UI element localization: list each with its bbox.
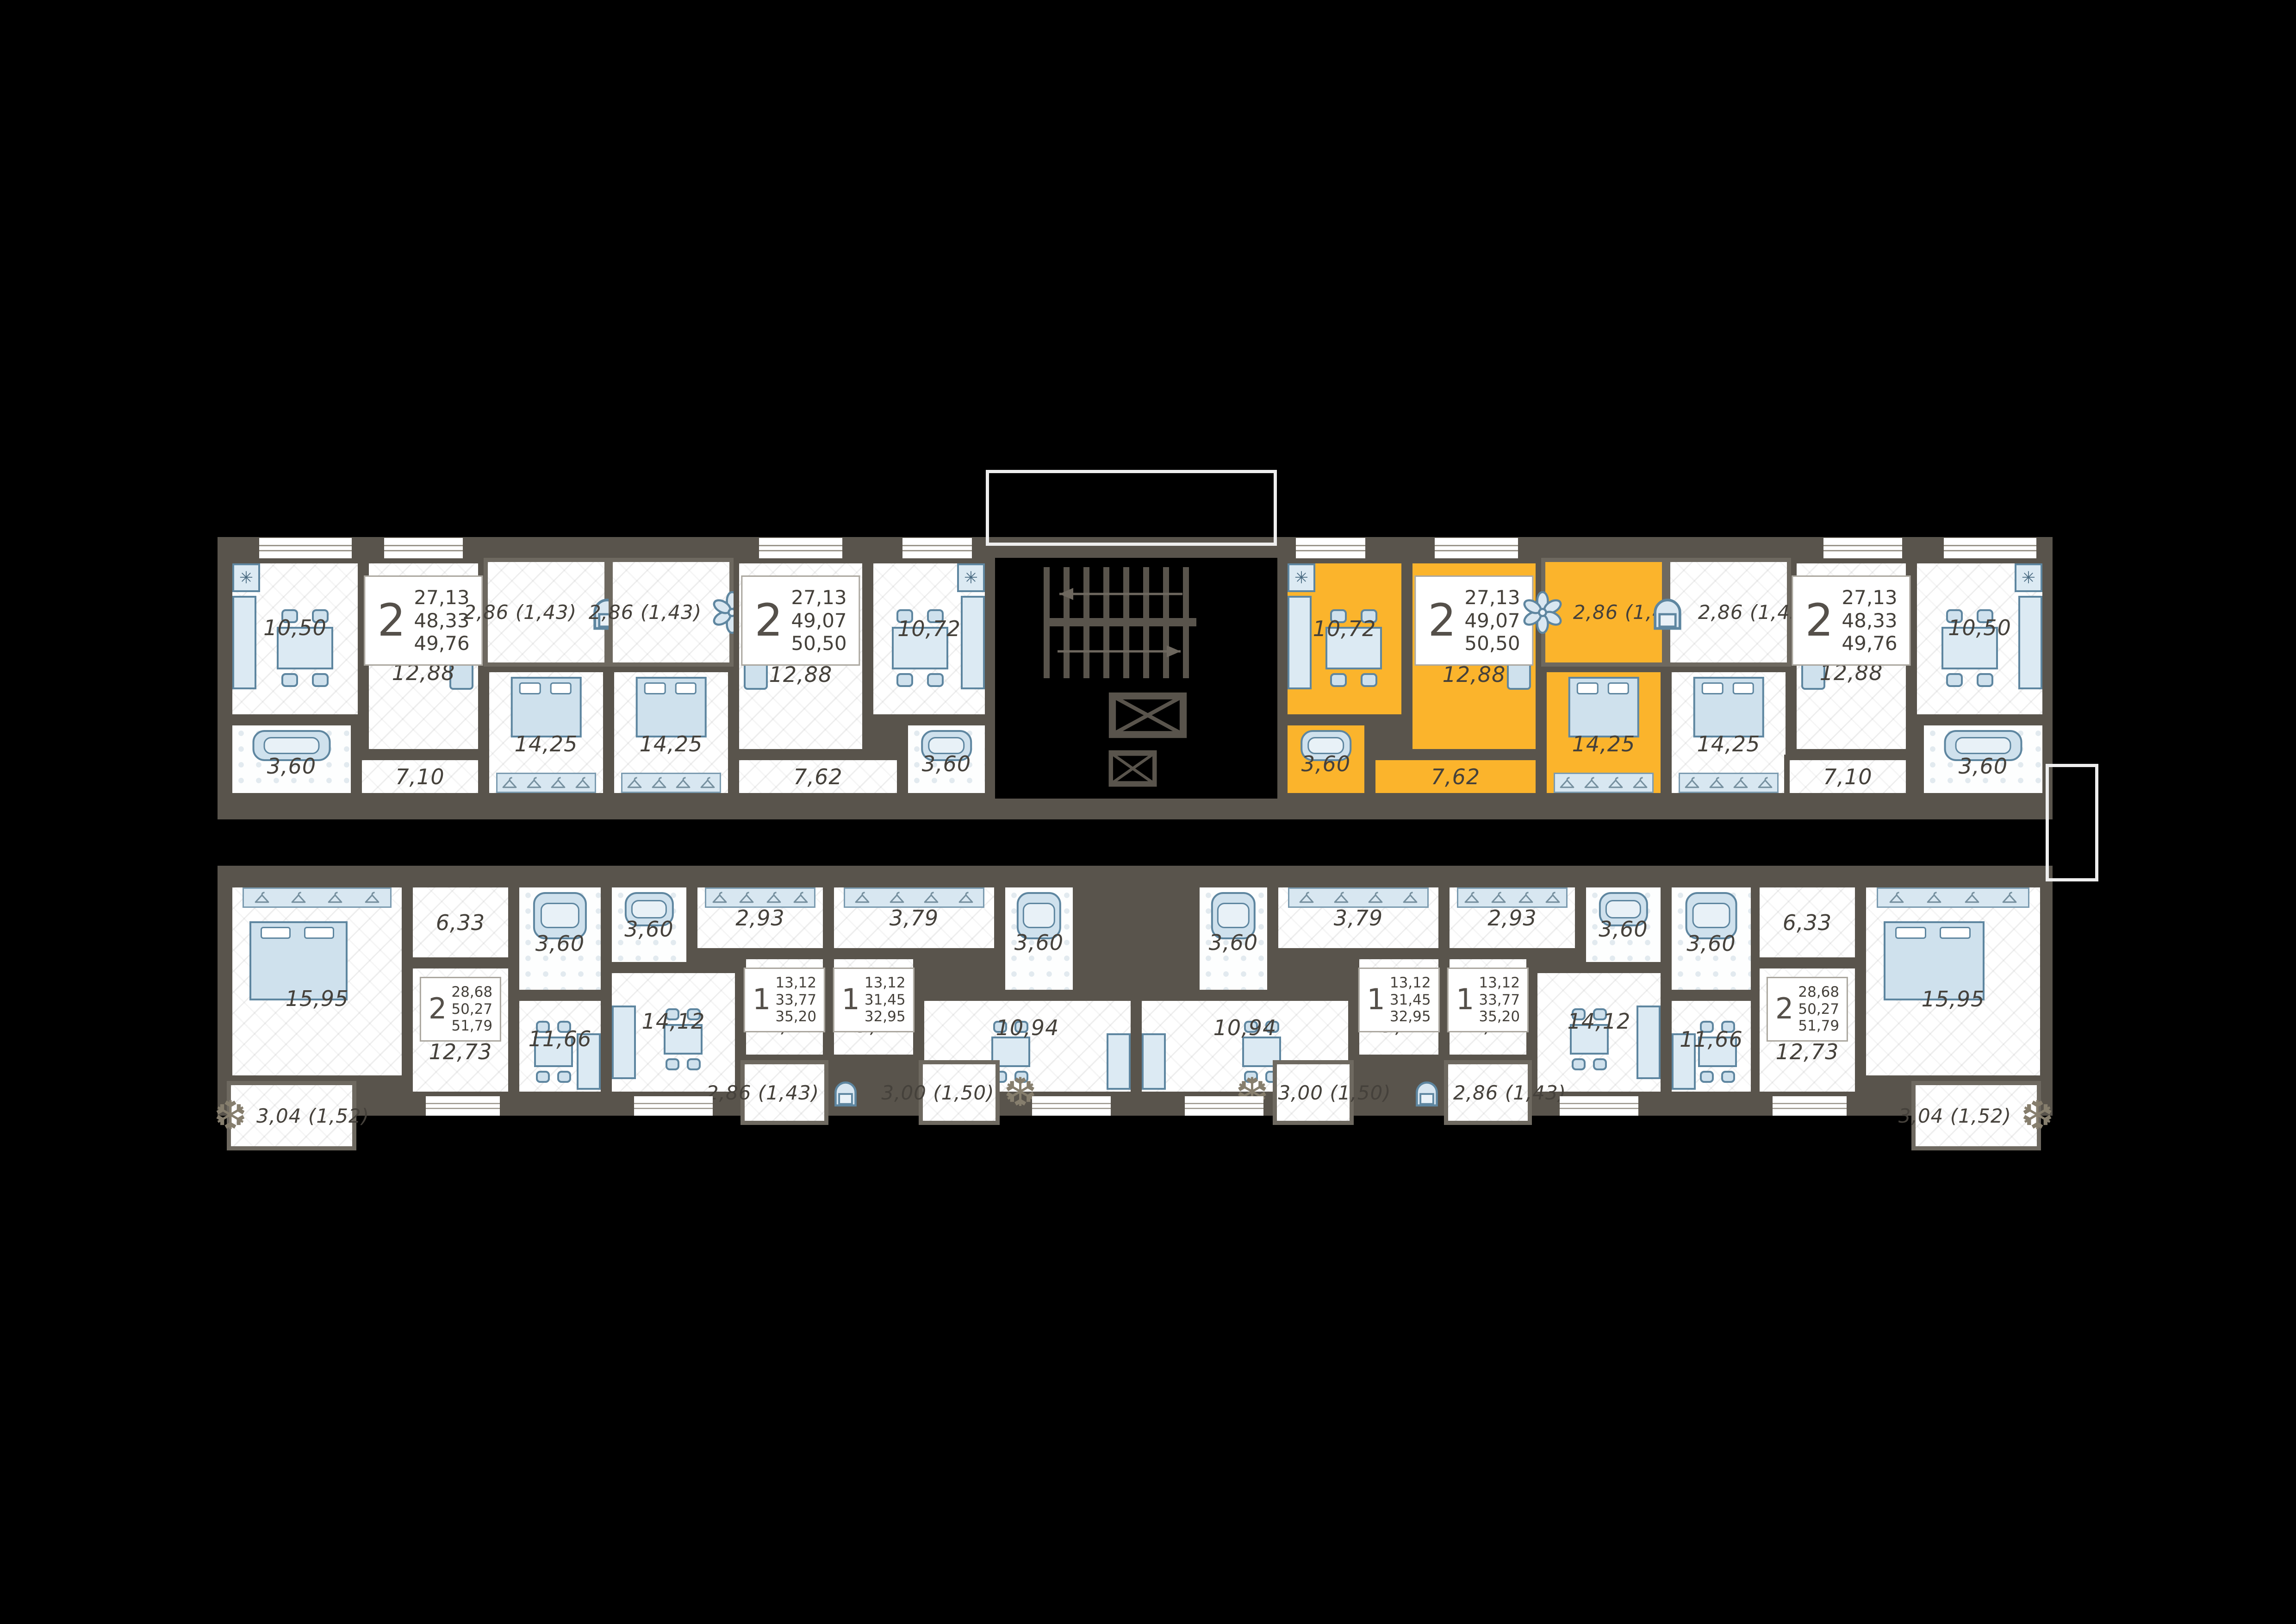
fridge-icon: ✳ [957, 563, 985, 592]
elevator-x-icon [1108, 750, 1157, 787]
chairs-row [1572, 1058, 1607, 1070]
room-area-label: 2,86 (1,43) [589, 601, 702, 624]
elevator-x-icon [1108, 692, 1187, 738]
bed [511, 677, 582, 737]
apartment-t3-hall[interactable]: 7,62 [1370, 755, 1541, 799]
chairs-row [1330, 673, 1377, 687]
room-area-label: 3,60 [1209, 930, 1258, 955]
apartment-t3-kitchen[interactable]: ✳10,72 [1282, 558, 1407, 720]
window [1944, 538, 2036, 558]
room-area-label: 3,60 [535, 931, 585, 956]
chair [687, 1058, 701, 1070]
window [1435, 538, 1518, 558]
hanger-icon [711, 891, 728, 904]
apartment-b5-living[interactable]: 113,1233,7735,2013,12 [1444, 954, 1532, 1060]
chair [927, 673, 944, 687]
shaft-outline-top [986, 470, 1277, 546]
hanger-icon [1926, 891, 1942, 904]
chair-icon [828, 1075, 863, 1110]
room-area-label: 3,00 (1,50) [1278, 1081, 1391, 1104]
apartment-t2-bedroom[interactable]: 14,25 [609, 667, 734, 799]
hanger-icon [1544, 891, 1561, 904]
window [1296, 538, 1365, 558]
hanger-icon [1583, 776, 1600, 789]
hanger-icon [254, 891, 270, 904]
room-area-label: 3,60 [1014, 930, 1064, 955]
kitchen-counter [961, 596, 985, 689]
apartment-b3-hall[interactable]: 3,79 [828, 882, 1000, 954]
card-base-area: 33,77 [775, 992, 816, 1009]
room-area-label: 3,60 [1301, 751, 1350, 776]
apartment-b1-bedroom[interactable]: 15,95 [227, 882, 407, 1081]
room-area-label: 7,62 [1431, 764, 1480, 789]
apartment-b1-kitchen[interactable]: 11,66 [514, 995, 606, 1097]
apartment-b2-bath[interactable]: 3,60 [606, 882, 692, 968]
kitchen-counter [1142, 1033, 1166, 1090]
elevator-shaft-2 [1108, 750, 1157, 787]
bed [1568, 677, 1639, 737]
card-total-area: 50,50 [791, 632, 846, 655]
card-living-area: 13,12 [775, 974, 816, 992]
hanger-icon [651, 776, 667, 789]
room-area-label: 12,88 [1443, 662, 1506, 687]
kitchen-counter [2018, 596, 2042, 689]
bed-pillow [1733, 682, 1754, 694]
hanger-icon [2001, 891, 2018, 904]
balcony-content: 2,86 (1,43) [1410, 1075, 1566, 1110]
room-area-label: 14,25 [1572, 731, 1636, 756]
wardrobe [621, 773, 722, 793]
room-area-label: 10,94 [1213, 1015, 1277, 1040]
bed-pillow [519, 682, 541, 694]
apartment-t1-bedroom[interactable]: 14,25 [484, 667, 609, 799]
staircase [1044, 567, 1196, 678]
chair [1572, 1058, 1586, 1070]
room-area-label: 3,60 [267, 754, 316, 779]
kitchen-counter [1107, 1033, 1131, 1090]
hanger-icon [1463, 891, 1480, 904]
apartment-b1-bath[interactable]: 3,60 [514, 882, 606, 995]
apartment-t3-bath[interactable]: 3,60 [1282, 720, 1370, 799]
apartment-card[interactable]: 227,1348,3349,76 [1792, 575, 1910, 666]
chairs-row [536, 1071, 571, 1083]
chair [536, 1071, 550, 1083]
chair [1946, 673, 1963, 687]
hanger-icon [1490, 891, 1507, 904]
card-base-area: 31,45 [1390, 992, 1431, 1009]
apartment-t2-hall[interactable]: 7,62 [734, 755, 902, 799]
kitchen-counter [1636, 1006, 1661, 1079]
room-area-label: 3,00 (1,50) [881, 1081, 994, 1104]
hanger-icon [364, 891, 380, 904]
apartment-b1-hall[interactable]: 6,33 [407, 882, 514, 963]
chair [1593, 1058, 1607, 1070]
card-rooms-count: 1 [753, 986, 771, 1013]
window [426, 1096, 500, 1116]
room-area-label: 10,50 [1948, 615, 2011, 640]
room-area-label: 3,60 [624, 917, 673, 942]
hanger-icon [327, 891, 343, 904]
bed-pillow [644, 682, 666, 694]
fir-plant-icon: ❆ [214, 1096, 247, 1136]
card-living-area: 13,12 [1390, 974, 1431, 992]
hanger-icon [765, 891, 782, 904]
room-area-label: 2,86 (1,43) [464, 601, 577, 624]
room-area-label: 6,33 [436, 910, 485, 935]
room-area-label: 14,12 [642, 1009, 705, 1034]
bed-pillow [1577, 682, 1598, 694]
balcony-content: 2,86 (1,43) [706, 1075, 863, 1110]
apartment-t2-living[interactable]: 227,1349,0750,5012,88 [734, 558, 868, 755]
wardrobe [243, 887, 392, 908]
card-living-area: 27,13 [414, 586, 469, 609]
window [259, 538, 352, 558]
bed-pillow [550, 682, 572, 694]
room-area-label: 2,93 [735, 906, 784, 931]
room-area-label: 15,95 [1922, 987, 1985, 1012]
hanger-icon [526, 776, 542, 789]
fridge-icon: ✳ [232, 563, 260, 592]
room-area-label: 11,66 [1680, 1027, 1743, 1052]
room-area-label: 7,62 [793, 764, 842, 789]
hanger-icon [889, 891, 905, 904]
chair [896, 673, 913, 687]
hanger-icon [1518, 891, 1534, 904]
chair [557, 1071, 571, 1083]
elevator-shaft-1 [1108, 692, 1187, 738]
card-total-area: 32,95 [1390, 1008, 1431, 1025]
window [1185, 1096, 1263, 1116]
apartment-b5-hall[interactable]: 2,93 [1444, 882, 1580, 954]
hanger-icon [1559, 776, 1575, 789]
chair [1721, 1071, 1735, 1083]
bed-pillow [304, 927, 334, 939]
card-living-area: 27,13 [791, 586, 846, 609]
apartment-b4-bath[interactable]: 3,60 [1194, 882, 1273, 995]
room-area-label: 3,60 [922, 751, 971, 776]
hanger-icon [699, 776, 716, 789]
room-area-label: 12,73 [429, 1039, 492, 1064]
wardrobe [1554, 773, 1654, 793]
apartment-b6-kitchen[interactable]: 11,66 [1666, 995, 1756, 1097]
hanger-icon [626, 776, 643, 789]
kitchen-counter [1288, 596, 1312, 689]
chair [1361, 673, 1377, 687]
apartment-card[interactable]: 227,1349,0750,50 [1414, 575, 1533, 666]
apartment-t1-living[interactable]: 227,1348,3349,7612,88 [363, 558, 484, 755]
apartment-b2-living[interactable]: 113,1233,7735,2013,12 [740, 954, 828, 1060]
hanger-icon [854, 891, 871, 904]
chair [312, 673, 329, 687]
hanger-icon [958, 891, 974, 904]
apartment-b6-balcony[interactable]: 3,04 (1,52)❆ [1911, 1081, 2041, 1150]
room-area-label: 3,79 [890, 906, 939, 931]
hanger-icon [792, 891, 809, 904]
apartment-card[interactable]: 228,6850,2751,79 [1767, 977, 1848, 1042]
card-living-area: 13,12 [1479, 974, 1520, 992]
card-total-area: 51,79 [451, 1018, 492, 1035]
chairs-row [666, 1058, 701, 1070]
chair [1330, 673, 1347, 687]
room-area-label: 11,66 [529, 1026, 592, 1051]
apartment-t1-hall[interactable]: 7,10 [356, 755, 484, 799]
card-rooms-count: 1 [841, 986, 859, 1013]
apartment-t1-bath[interactable]: 3,60 [227, 720, 356, 799]
apartment-t1-kitchen[interactable]: ✳10,50 [227, 558, 363, 720]
apartment-b4-living[interactable]: 113,1231,4532,9513,12 [1354, 954, 1444, 1060]
card-rooms-count: 2 [1805, 600, 1833, 642]
kitchen-counter [612, 1006, 636, 1079]
card-total-area: 35,20 [775, 1008, 816, 1025]
bed-pillow [1608, 682, 1629, 694]
window [384, 538, 463, 558]
room-area-label: 15,95 [286, 986, 349, 1011]
card-base-area: 50,27 [451, 1001, 492, 1018]
card-base-area: 49,07 [1464, 609, 1520, 632]
card-total-area: 32,95 [865, 1008, 906, 1025]
bed [636, 677, 707, 737]
bed-pillow [1895, 927, 1926, 939]
room-area-label: 12,73 [1776, 1039, 1839, 1064]
apartment-t2-kitchen[interactable]: ✳10,72 [868, 558, 990, 720]
card-living-area: 27,13 [1842, 586, 1897, 609]
balcony-content: 3,00 (1,50)❆ [881, 1073, 1037, 1112]
apartment-t3-living[interactable]: 227,1349,0750,5012,88 [1407, 558, 1541, 755]
bed-pillow [1702, 682, 1723, 694]
room-area-label: 14,12 [1568, 1009, 1631, 1034]
room-area-label: 12,88 [769, 662, 833, 687]
card-rooms-count: 2 [1428, 600, 1456, 642]
chair-icon [1410, 1075, 1444, 1110]
bed-pillow [675, 682, 697, 694]
room-area-label: 10,94 [996, 1015, 1059, 1040]
wardrobe [705, 887, 815, 908]
window [759, 538, 842, 558]
window [1032, 1096, 1111, 1116]
room-area-label: 3,04 (1,52) [1898, 1105, 2011, 1127]
room-area-label: 2,86 (1,43) [706, 1081, 819, 1104]
card-living-area: 13,12 [865, 974, 906, 992]
balcony-content: 3,04 (1,52)❆ [1898, 1096, 2054, 1136]
room-area-label: 2,86 (1,43) [1453, 1081, 1566, 1104]
apartment-b6-bath[interactable]: 3,60 [1666, 882, 1756, 995]
apartment-b3-living[interactable]: 113,1231,4532,9513,12 [828, 954, 919, 1060]
hanger-icon [550, 776, 566, 789]
entrance-outline-right [2046, 764, 2098, 881]
card-base-area: 33,77 [1479, 992, 1520, 1009]
wardrobe [1288, 887, 1429, 908]
room-area-label: 7,10 [395, 764, 444, 789]
wardrobe [844, 887, 985, 908]
chairs-row [896, 673, 944, 687]
room-area-label: 3,60 [1686, 931, 1736, 956]
card-total-area: 49,76 [1842, 632, 1897, 655]
kitchen-counter [232, 596, 256, 689]
hanger-icon [1298, 891, 1315, 904]
balcony-content: 2,86 (1,43) [589, 591, 753, 634]
card-rooms-count: 2 [754, 600, 783, 642]
apartment-card[interactable]: 113,1233,7735,20 [1447, 968, 1529, 1032]
apartment-t4-kitchen[interactable]: ✳10,50 [1911, 558, 2048, 720]
card-base-area: 48,33 [414, 609, 469, 632]
apartment-card[interactable]: 228,6850,2751,79 [420, 977, 501, 1042]
chair [281, 673, 298, 687]
hanger-icon [738, 891, 755, 904]
window [1560, 1096, 1638, 1116]
plant-icon [1521, 591, 1564, 634]
bed-pillow [261, 927, 291, 939]
hanger-icon [1964, 891, 1980, 904]
wardrobe [1457, 887, 1568, 908]
card-base-area: 49,07 [791, 609, 846, 632]
apartment-card[interactable]: 113,1231,4532,95 [1358, 968, 1439, 1032]
hanger-icon [501, 776, 518, 789]
apartment-t4-hall[interactable]: 7,10 [1784, 755, 1911, 799]
apartment-b6-living[interactable]: 228,6850,2751,7912,73 [1754, 963, 1860, 1097]
stair-arrows-icon [1044, 567, 1196, 678]
apartment-card[interactable]: 113,1233,7735,20 [744, 968, 825, 1032]
card-total-area: 49,76 [414, 632, 469, 655]
apartment-b2-hall[interactable]: 2,93 [692, 882, 828, 954]
room-area-label: 14,25 [640, 731, 703, 756]
apartment-b4-hall[interactable]: 3,79 [1273, 882, 1444, 954]
apartment-b3-bath[interactable]: 3,60 [1000, 882, 1078, 995]
bed [1693, 677, 1764, 737]
hanger-icon [1367, 891, 1384, 904]
wardrobe [496, 773, 597, 793]
apartment-b1-balcony[interactable]: ❆3,04 (1,52) [227, 1081, 356, 1150]
window [902, 538, 972, 558]
apartment-b1-living[interactable]: 228,6850,2751,7912,73 [407, 963, 514, 1097]
chairs-row [1700, 1071, 1735, 1083]
apartment-b6-bedroom[interactable]: 15,95 [1860, 882, 2046, 1081]
room-area-label: 10,50 [263, 615, 327, 640]
hanger-icon [1402, 891, 1419, 904]
fridge-icon: ✳ [2015, 563, 2042, 592]
room-area-label: 10,72 [897, 616, 961, 641]
chair [1977, 673, 1993, 687]
room-area-label: 3,60 [1599, 917, 1648, 942]
fir-plant-icon: ❆ [2021, 1096, 2054, 1136]
hanger-icon [574, 776, 591, 789]
room-area-label: 10,72 [1313, 616, 1376, 641]
apartment-b4-balcony[interactable]: ❆3,00 (1,50) [1273, 1060, 1354, 1125]
card-rooms-count: 1 [1367, 986, 1385, 1013]
room-area-label: 3,04 (1,52) [256, 1105, 369, 1127]
hanger-icon [1607, 776, 1624, 789]
room-area-label: 14,25 [1697, 731, 1761, 756]
room-area-label: 2,93 [1487, 906, 1537, 931]
window [634, 1096, 713, 1116]
room-area-label: 7,10 [1823, 764, 1872, 789]
chair-icon [1646, 591, 1689, 634]
room-area-label: 3,60 [1959, 754, 2008, 779]
room-area-label: 14,25 [515, 731, 578, 756]
floor-plan: ✳10,50227,1348,3349,7612,883,607,102,86 … [0, 0, 2296, 1624]
apartment-b5-bath[interactable]: 3,60 [1580, 882, 1666, 968]
apartment-b5-balcony[interactable]: 2,86 (1,43) [1444, 1060, 1532, 1125]
room-area-label: 6,33 [1783, 910, 1832, 935]
card-living-area: 28,68 [1798, 984, 1839, 1001]
card-living-area: 28,68 [451, 984, 492, 1001]
apartment-t4-balcony[interactable]: 2,86 (1,43) [1666, 558, 1791, 667]
chairs-row [281, 673, 329, 687]
hanger-icon [923, 891, 940, 904]
card-total-area: 50,50 [1464, 632, 1520, 655]
apartment-b3-balcony[interactable]: 3,00 (1,50)❆ [919, 1060, 1000, 1125]
hanger-icon [290, 891, 307, 904]
room-area-label: 3,79 [1334, 906, 1383, 931]
apartment-t2-balcony[interactable]: 2,86 (1,43) [609, 558, 734, 667]
card-rooms-count: 2 [377, 600, 405, 642]
window [1823, 538, 1902, 558]
window [1773, 1096, 1847, 1116]
card-total-area: 35,20 [1479, 1008, 1520, 1025]
chair [1700, 1071, 1714, 1083]
hanger-icon [1888, 891, 1905, 904]
card-rooms-count: 1 [1456, 986, 1474, 1013]
card-rooms-count: 2 [429, 995, 447, 1023]
apartment-t4-bath[interactable]: 3,60 [1918, 720, 2048, 799]
apartment-card[interactable]: 113,1231,4532,95 [833, 968, 914, 1032]
apartment-b2-balcony[interactable]: 2,86 (1,43) [740, 1060, 828, 1125]
apartment-t2-bath[interactable]: 3,60 [902, 720, 990, 799]
hanger-icon [1632, 776, 1649, 789]
chairs-row [1946, 673, 1993, 687]
hanger-icon [675, 776, 691, 789]
hanger-icon [1333, 891, 1350, 904]
bed-pillow [1940, 927, 1971, 939]
apartment-t4-bedroom[interactable]: 14,25 [1666, 667, 1791, 799]
card-base-area: 48,33 [1842, 609, 1897, 632]
hanger-icon [1684, 776, 1700, 789]
card-base-area: 31,45 [865, 992, 906, 1009]
balcony-content: ❆3,04 (1,52) [214, 1096, 369, 1136]
apartment-card[interactable]: 227,1349,0750,50 [741, 575, 860, 666]
fridge-icon: ✳ [1288, 563, 1315, 592]
card-living-area: 27,13 [1464, 586, 1520, 609]
apartment-b6-hall[interactable]: 6,33 [1754, 882, 1860, 963]
balcony-content: 2,86 (1,43) [1646, 591, 1811, 634]
wardrobe [1679, 773, 1779, 793]
card-base-area: 50,27 [1798, 1001, 1839, 1018]
hanger-icon [1732, 776, 1749, 789]
card-rooms-count: 2 [1775, 995, 1793, 1023]
hanger-icon [1708, 776, 1725, 789]
chair [666, 1058, 679, 1070]
wardrobe [1877, 887, 2030, 908]
apartment-t4-living[interactable]: 227,1348,3349,7612,88 [1791, 558, 1911, 755]
apartment-t3-bedroom[interactable]: 14,25 [1541, 667, 1666, 799]
hanger-icon [1757, 776, 1773, 789]
card-total-area: 51,79 [1798, 1018, 1839, 1035]
